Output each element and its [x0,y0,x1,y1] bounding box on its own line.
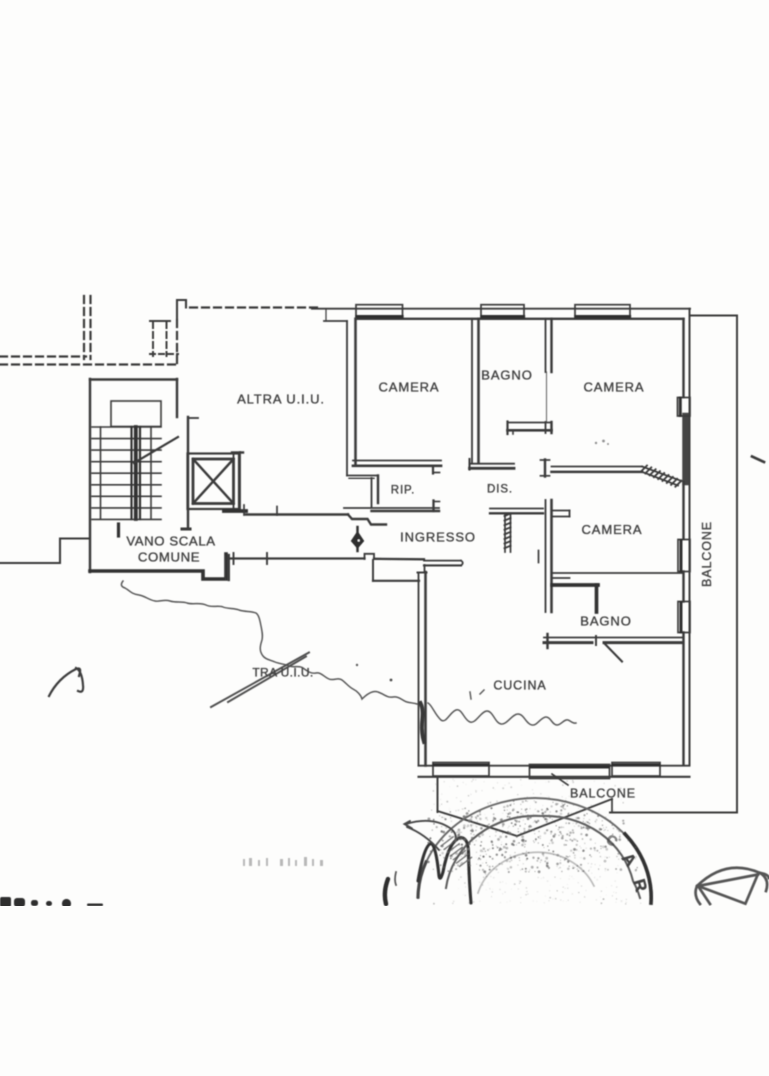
svg-text:BALCONE: BALCONE [700,521,714,587]
svg-text:BALCONE: BALCONE [570,787,636,801]
svg-text:CAMERA: CAMERA [581,522,642,537]
svg-text:RIP.: RIP. [391,485,415,497]
svg-text:CAMERA: CAMERA [583,380,644,395]
svg-text:CAMERA: CAMERA [378,380,439,395]
svg-text:COMUNE: COMUNE [138,550,200,565]
svg-text:INGRESSO: INGRESSO [400,530,476,545]
svg-text:TRA U.I.U.: TRA U.I.U. [252,666,313,680]
svg-text:ALTRA U.I.U.: ALTRA U.I.U. [237,392,325,407]
svg-text:CUCINA: CUCINA [493,679,546,693]
svg-text:VANO SCALA: VANO SCALA [126,534,215,549]
svg-text:BAGNO: BAGNO [481,368,532,383]
svg-text:DIS.: DIS. [487,484,513,496]
svg-text:BAGNO: BAGNO [580,614,631,629]
